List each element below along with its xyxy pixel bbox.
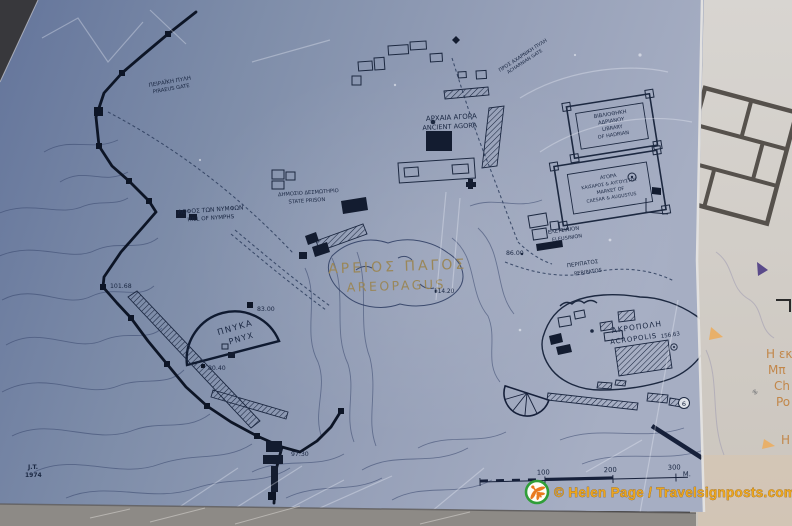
elevation-pnyx-crest: 83.00 <box>257 306 275 313</box>
side-panel-text-line: Η <box>781 433 790 447</box>
map-label-ancient-agora: ΑΡΧΑΙΑ ΑΓΟΡΑ ANCIENT AGORA <box>422 112 478 132</box>
scale-tick-100: 100 <box>537 468 550 476</box>
metal-sign: 6 ΒΙΒΛΙΟΘΗΚΗ ΑΔΡΙΑΝΟΥ LIBRARY OF HADRIAN… <box>0 0 709 525</box>
elevation-hill-of-nymphs: 101.68 <box>110 283 132 290</box>
svg-text:1974: 1974 <box>25 472 42 479</box>
side-panel-text-line: Μπ <box>768 363 786 377</box>
scale-tick-200: 200 <box>604 466 617 474</box>
theatre-number: 6 <box>682 400 686 408</box>
side-panel-text-line: Η εκ <box>766 347 792 361</box>
scale-tick-300: 300 <box>668 463 681 471</box>
side-panel-background <box>690 0 792 526</box>
tower-of-winds-center <box>631 176 633 178</box>
side-panel-text-line: Po <box>776 395 790 409</box>
svg-text:J.T.: J.T. <box>27 464 38 471</box>
elevation-pnyx-terrace: 80.40 <box>208 365 226 372</box>
scale-unit: M. <box>683 470 691 478</box>
copyright-text: © Helen Page / Travelsignposts.com <box>554 485 792 500</box>
elevation-south-gate: 97.30 <box>291 451 309 458</box>
side-panel-text-line: Ch <box>774 379 790 393</box>
photo-of-engraved-map-sign: Η εκ Μπ Ch Po Η <box>0 0 792 526</box>
elevation-eleusinion: 86.00 <box>506 250 524 257</box>
